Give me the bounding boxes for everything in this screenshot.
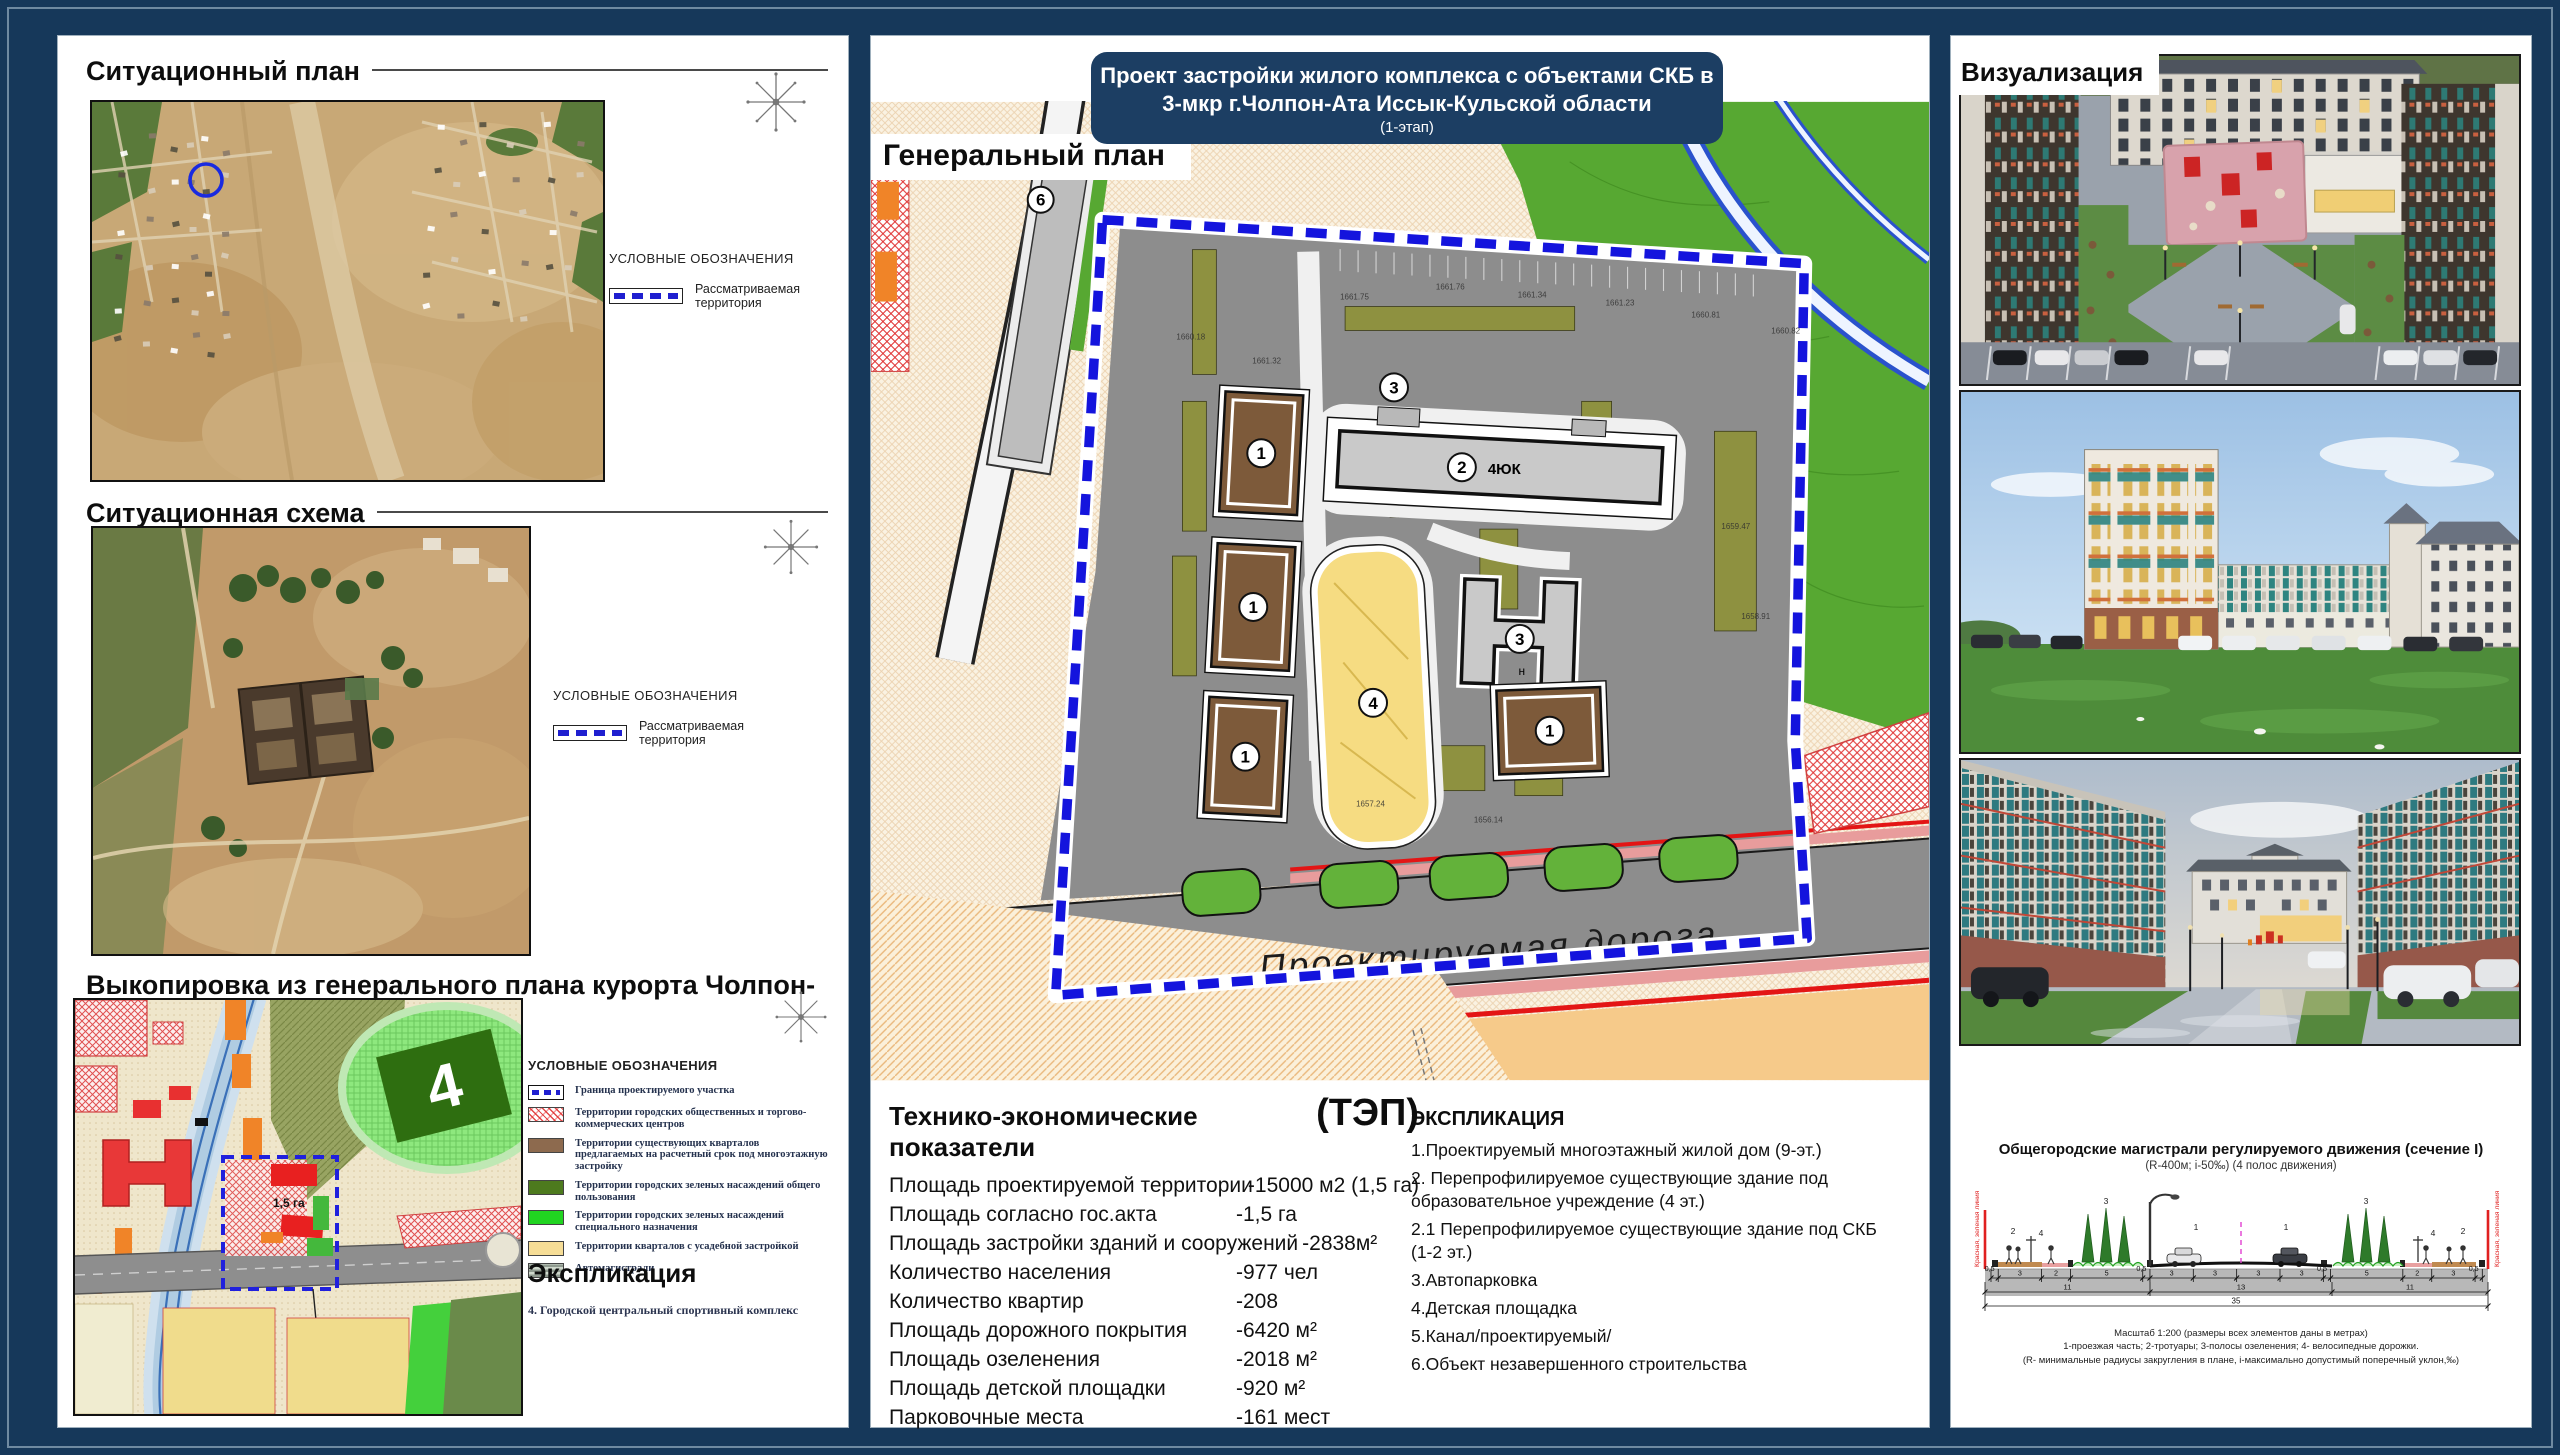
svg-text:1657.24: 1657.24 — [1356, 800, 1385, 809]
tep-block: Технико-экономические показатели (ТЭП) П… — [889, 1092, 1419, 1432]
tep-row: Площадь застройки зданий и сооружений-28… — [889, 1229, 1419, 1258]
section-situational-scheme-header: Ситуационная схема — [86, 498, 828, 529]
svg-text:3: 3 — [2213, 1269, 2217, 1278]
boundary-swatch-icon — [609, 288, 683, 304]
master-plan-extract-map: 4 — [73, 998, 523, 1416]
tep-row-value: -977 чел — [1236, 1258, 1318, 1287]
svg-text:2: 2 — [2415, 1269, 2419, 1278]
render-street-day — [1959, 390, 2521, 754]
explication-item: 2.1 Перепрофилируемое существующие здани… — [1411, 1218, 1897, 1264]
tep-row-label: Количество квартир — [889, 1287, 1236, 1316]
legend-item-label: Территории кварталов с усадебной застрой… — [575, 1241, 799, 1253]
render-courtyard-aerial — [1959, 54, 2521, 386]
pale-yellow-swatch-icon — [528, 1241, 564, 1256]
tep-row: Площадь согласно гос.акта-1,5 га — [889, 1200, 1419, 1229]
svg-text:1: 1 — [2284, 1222, 2289, 1232]
stadium: 4 — [342, 1006, 521, 1170]
svg-text:3: 3 — [2170, 1269, 2174, 1278]
legend-item-label: Территории существующих кварталов предла… — [575, 1138, 828, 1173]
explication-item: 4.Детская площадка — [1411, 1297, 1897, 1320]
left-explication: Экспликация 4. Городской центральный спо… — [528, 1258, 838, 1318]
bright-green-swatch-icon — [528, 1210, 564, 1225]
tep-row-label: Площадь детской площадки — [889, 1374, 1236, 1403]
tep-row: Площадь проектируемой территории-15000 м… — [889, 1171, 1419, 1200]
svg-text:3: 3 — [2364, 1196, 2369, 1206]
svg-text:4: 4 — [2039, 1228, 2044, 1238]
master-plan-legend: УСЛОВНЫЕ ОБОЗНАЧЕНИЯ Граница проектируем… — [528, 1058, 828, 1285]
legend-item: Рассматриваемая территория — [553, 719, 813, 747]
svg-text:4: 4 — [2431, 1228, 2436, 1238]
svg-text:1656.14: 1656.14 — [1474, 816, 1503, 825]
main-tower — [2085, 450, 2219, 650]
svg-text:2: 2 — [2054, 1269, 2058, 1278]
dark-green-swatch-icon — [528, 1180, 564, 1195]
tep-row-value: -2018 м² — [1236, 1345, 1317, 1374]
svg-text:1: 1 — [1249, 598, 1258, 617]
poster-board: Ситуационный план УСЛОВНЫЕ ОБОЗНА — [0, 0, 2560, 1455]
svg-text:1: 1 — [2194, 1222, 2199, 1232]
section-title: Ситуационная схема — [86, 498, 365, 529]
svg-text:1658.91: 1658.91 — [1741, 612, 1770, 621]
svg-text:н: н — [1518, 664, 1525, 678]
svg-text:35: 35 — [2232, 1297, 2241, 1306]
svg-text:2: 2 — [2461, 1226, 2466, 1236]
legend-item: Территории существующих кварталов предла… — [528, 1138, 828, 1173]
svg-text:1660.82: 1660.82 — [1771, 326, 1800, 335]
svg-text:3: 3 — [2300, 1269, 2304, 1278]
svg-text:0,5: 0,5 — [1985, 1264, 1995, 1273]
project-title-line1: Проект застройки жилого комплекса с объе… — [1099, 62, 1715, 90]
tep-row-label: Площадь согласно гос.акта — [889, 1200, 1236, 1229]
tep-row-value: -2838м² — [1302, 1229, 1377, 1258]
north-compass-icon — [770, 986, 832, 1048]
svg-text:1661.34: 1661.34 — [1518, 291, 1547, 300]
cross-section-subtitle: (R-400м; i-50‰) (4 полос движения) — [1959, 1160, 2523, 1172]
svg-text:2: 2 — [1457, 458, 1466, 477]
left-panel: Ситуационный план УСЛОВНЫЕ ОБОЗНА — [57, 35, 849, 1428]
explication-block: ЭКСПЛИКАЦИЯ 1.Проектируемый многоэтажный… — [1411, 1108, 1897, 1381]
svg-text:3: 3 — [2104, 1196, 2109, 1206]
svg-text:3: 3 — [1389, 378, 1398, 397]
svg-text:1661.76: 1661.76 — [1436, 283, 1465, 292]
legend-item: Территории городских общественных и торг… — [528, 1107, 828, 1131]
tep-row-label: Парковочные места — [889, 1403, 1236, 1432]
legend-item-label: Территории городских общественных и торг… — [575, 1107, 828, 1131]
svg-text:13: 13 — [2237, 1283, 2245, 1292]
svg-text:1: 1 — [1257, 444, 1266, 463]
svg-text:0,5: 0,5 — [2469, 1264, 2479, 1273]
road-cross-section: Общегородские магистрали регулируемого д… — [1959, 1141, 2523, 1366]
legend-item-label: Граница проектируемого участка — [575, 1085, 735, 1097]
red-hatch-swatch-icon — [528, 1107, 564, 1122]
legend-item-label: Территории городских зеленых насаждений … — [575, 1180, 828, 1204]
explication-item: 1.Проектируемый многоэтажный жилой дом (… — [1411, 1139, 1897, 1162]
svg-text:1659.47: 1659.47 — [1721, 522, 1750, 531]
tep-row: Площадь озеленения-2018 м² — [889, 1345, 1419, 1374]
tep-row-value: -6420 м² — [1236, 1316, 1317, 1345]
svg-text:4: 4 — [1368, 694, 1378, 713]
svg-text:1661.23: 1661.23 — [1606, 299, 1635, 308]
cross-section-title: Общегородские магистрали регулируемого д… — [1959, 1141, 2523, 1158]
tep-row-label: Площадь проектируемой территории — [889, 1171, 1248, 1200]
boundary-swatch-icon — [553, 725, 627, 741]
tep-row-label: Площадь озеленения — [889, 1345, 1236, 1374]
svg-text:1660.18: 1660.18 — [1176, 332, 1205, 341]
tep-row-label: Количество населения — [889, 1258, 1236, 1287]
project-title-block: Проект застройки жилого комплекса с объе… — [1091, 52, 1723, 144]
project-title-line3: (1-этап) — [1099, 119, 1715, 136]
svg-text:1661.32: 1661.32 — [1252, 356, 1281, 365]
tep-row-label: Площадь дорожного покрытия — [889, 1316, 1236, 1345]
legend-item: Территории кварталов с усадебной застрой… — [528, 1241, 828, 1256]
situational-plan-satellite-image — [90, 100, 605, 482]
legend-item: Граница проектируемого участка — [528, 1085, 828, 1100]
explication-item: 5.Канал/проектируемый/ — [1411, 1325, 1897, 1348]
svg-text:4ЮК: 4ЮК — [1488, 461, 1522, 478]
legend-title: УСЛОВНЫЕ ОБОЗНАЧЕНИЯ — [528, 1058, 828, 1073]
red-line-label-right: Красная, зеленая линия — [2494, 1190, 2501, 1267]
legend-item: Территории городских зеленых насаждений … — [528, 1210, 828, 1234]
cross-section-caption3: (R- минимальные радиусы закругления в пл… — [1959, 1355, 2523, 1366]
general-plan-map: Проектируемая дорога А — [871, 101, 1929, 1081]
legend-title: УСЛОВНЫЕ ОБОЗНАЧЕНИЯ — [553, 688, 813, 703]
tep-row-value: -920 м² — [1236, 1374, 1305, 1403]
red-line-label-left: Красная, зеленая линия — [1974, 1190, 1981, 1267]
tep-row: Площадь дорожного покрытия -6420 м² — [889, 1316, 1419, 1345]
svg-text:0,5: 0,5 — [2317, 1264, 2327, 1273]
svg-text:3: 3 — [2256, 1269, 2260, 1278]
legend-item: Рассматриваемая территория — [609, 282, 839, 310]
center-panel: Проект застройки жилого комплекса с объе… — [870, 35, 1930, 1428]
boundary-swatch-icon — [528, 1085, 564, 1100]
render-courtyard-dusk — [1959, 758, 2521, 1046]
svg-text:11: 11 — [2064, 1283, 2072, 1292]
people — [2006, 1246, 2466, 1264]
legend-item-label: Территории городских зеленых насаждений … — [575, 1210, 828, 1234]
section-situational-plan-header: Ситуационный план — [86, 56, 828, 87]
svg-text:3: 3 — [2018, 1269, 2022, 1278]
tep-abbr: (ТЭП) — [1316, 1092, 1419, 1135]
tep-row: Парковочные места-161 мест — [889, 1403, 1419, 1432]
legend-item: Территории городских зеленых насаждений … — [528, 1180, 828, 1204]
svg-text:2: 2 — [2011, 1226, 2016, 1236]
section-title: Ситуационный план — [86, 56, 360, 87]
zone-markers: 2 4 3 1 1 3 4 2 — [2011, 1196, 2466, 1238]
visualization-label: Визуализация — [1951, 52, 2159, 95]
brown-swatch-icon — [528, 1138, 564, 1153]
explication-item: 4. Городской центральный спортивный комп… — [528, 1303, 838, 1318]
svg-text:5: 5 — [2365, 1269, 2369, 1278]
tep-title: Технико-экономические показатели — [889, 1101, 1302, 1163]
tep-row-value: -15000 м2 (1,5 га) — [1248, 1171, 1419, 1200]
explication-title: Экспликация — [528, 1258, 838, 1289]
tep-row-value: -208 — [1236, 1287, 1278, 1316]
situational-scheme-legend: УСЛОВНЫЕ ОБОЗНАЧЕНИЯ Рассматриваемая тер… — [553, 688, 813, 747]
svg-text:3: 3 — [1515, 630, 1524, 649]
tep-row-value: -1,5 га — [1236, 1200, 1297, 1229]
explication-item: 6.Объект незавершенного строительства — [1411, 1353, 1897, 1376]
project-title-line2: 3-мкр г.Чолпон-Ата Иссык-Кульской област… — [1099, 90, 1715, 118]
svg-text:1: 1 — [1545, 722, 1554, 741]
svg-text:5: 5 — [2105, 1269, 2109, 1278]
svg-text:6: 6 — [1036, 191, 1045, 210]
tep-row: Количество населения-977 чел — [889, 1258, 1419, 1287]
cross-section-caption2: 1-проезжая часть; 2-тротуары; 3-полосы о… — [1959, 1341, 2523, 1352]
svg-text:1661.75: 1661.75 — [1340, 293, 1369, 302]
cross-section-caption1: Масштаб 1:200 (размеры всех элементов да… — [1959, 1328, 2523, 1339]
situational-plan-legend: УСЛОВНЫЕ ОБОЗНАЧЕНИЯ Рассматриваемая тер… — [609, 251, 839, 310]
cross-section-drawing: Красная, зеленая линия Красная, зеленая … — [1971, 1174, 2511, 1324]
tep-row: Количество квартир-208 — [889, 1287, 1419, 1316]
right-panel: Визуализация — [1950, 35, 2532, 1428]
trees — [2073, 1208, 2403, 1266]
legend-title: УСЛОВНЫЕ ОБОЗНАЧЕНИЯ — [609, 251, 839, 266]
north-compass-icon — [740, 66, 812, 138]
right-building — [2383, 503, 2519, 647]
site-area-label: 1,5 га — [273, 1196, 305, 1210]
situational-scheme-satellite-image — [91, 526, 531, 956]
explication-item: 2. Перепрофилируемое существующие здание… — [1411, 1167, 1897, 1213]
red-lines — [1985, 1210, 2488, 1269]
north-compass-icon — [758, 514, 824, 580]
svg-text:1660.81: 1660.81 — [1691, 311, 1720, 320]
explication-item: 3.Автопарковка — [1411, 1269, 1897, 1292]
svg-text:0,5: 0,5 — [2136, 1264, 2146, 1273]
svg-text:11: 11 — [2406, 1283, 2414, 1292]
tep-row-label: Площадь застройки зданий и сооружений — [889, 1229, 1302, 1258]
tep-row-value: -161 мест — [1236, 1403, 1330, 1432]
svg-text:1: 1 — [1241, 748, 1250, 767]
tep-row: Площадь детской площадки-920 м² — [889, 1374, 1419, 1403]
explication-title: ЭКСПЛИКАЦИЯ — [1411, 1108, 1897, 1131]
svg-text:3: 3 — [2451, 1269, 2455, 1278]
